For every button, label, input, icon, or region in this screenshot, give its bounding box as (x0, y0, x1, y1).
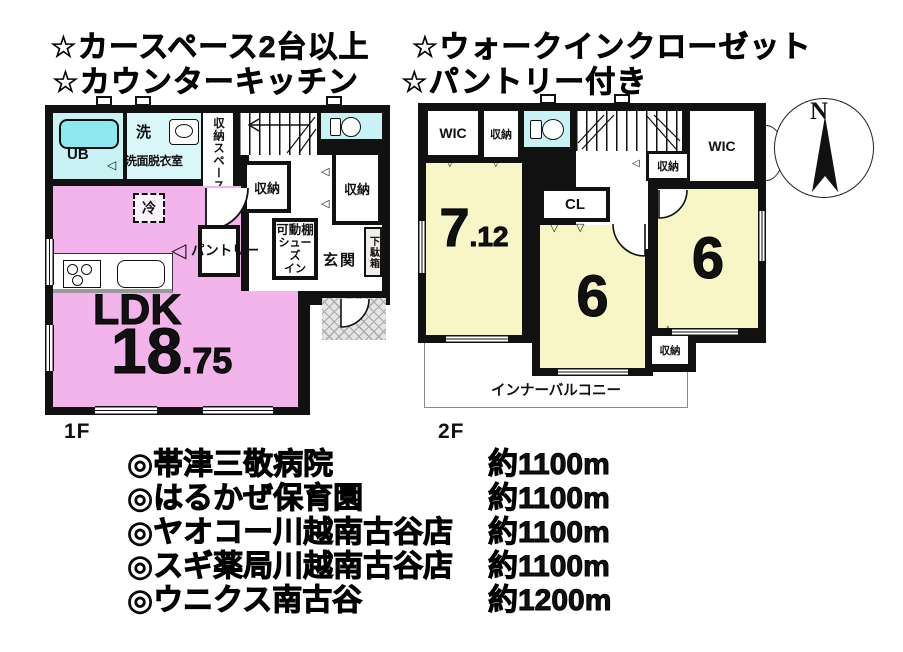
label-room7-area: 7 .12 (426, 201, 522, 255)
header-line-2: ☆カウンターキッチン ☆パントリー付き (52, 57, 647, 101)
label-fridge: 冷 (142, 198, 156, 218)
vent-tab (135, 96, 151, 106)
facility-marker-icon: ◎ (127, 450, 153, 480)
facility-name: はるかぜ保育園 (153, 484, 363, 514)
door-arc-icon (658, 189, 688, 219)
storage-closet: 収納 (332, 151, 382, 225)
room6mid-area: 6 (576, 263, 608, 330)
closet-cl: CL (540, 187, 610, 222)
burner-icon (72, 275, 83, 286)
room-label-storage-b: 収納 (344, 179, 370, 198)
storage-closet: 収納 (243, 161, 291, 213)
burner-icon (81, 264, 92, 275)
facility-row: ◎スギ薬局川越南古谷店 約1100m (127, 552, 610, 582)
window (558, 368, 628, 376)
toilet-icon (542, 119, 564, 140)
floorplan-1f: UB ◁ 洗 洗面脱衣室 収納スペース (45, 105, 390, 415)
vent-tab (326, 96, 342, 106)
room-label-storage-top: 収納 (490, 126, 512, 142)
facility-distance: 約1100m (488, 484, 610, 514)
window (203, 406, 273, 415)
ldk-area-int: 18 (111, 319, 182, 383)
room-label-storage-mid: 収納 (657, 158, 679, 174)
pantry-arrow-icon: ◁ (171, 241, 186, 261)
door-mark-icon: △ (664, 325, 672, 335)
label-shoes-in-1: シューズ (276, 237, 314, 262)
storage-closet: 収納 (646, 151, 690, 181)
vent-tab (96, 96, 112, 106)
floorplan-2f: インナーバルコニー WIC 収納 WIC (418, 103, 766, 415)
burner-icon (67, 264, 78, 275)
facility-distance: 約1100m (488, 552, 610, 582)
facility-marker-icon: ◎ (127, 518, 153, 548)
toilet-icon (341, 117, 361, 137)
room-unit-bath: UB ◁ (53, 113, 123, 179)
window (45, 325, 54, 371)
stairs-1f (239, 113, 317, 155)
room-label-washroom: 洗面脱衣室 (125, 155, 183, 168)
stairs-2f (576, 111, 682, 151)
shoes-in-closet: 可動棚 シューズ イン (272, 218, 318, 280)
compass: N (772, 96, 878, 202)
door-mark-icon: ◁ (107, 159, 116, 171)
facility-name: スギ薬局川越南古谷店 (153, 552, 453, 582)
window (758, 211, 766, 261)
door-mark-icon: ◁ (632, 159, 640, 169)
kitchen-sink-icon (117, 260, 165, 288)
room-laundry: 洗 洗面脱衣室 (127, 113, 201, 179)
facility-distance: 約1200m (488, 586, 611, 616)
window (446, 335, 508, 343)
label-inner-balcony: インナーバルコニー (491, 379, 621, 400)
door-mark-icon: ◁ (321, 199, 329, 210)
ldk-area-dec: .75 (182, 343, 232, 379)
facility-marker-icon: ◎ (127, 484, 153, 514)
door-mark-icon: ◁ (321, 167, 329, 178)
room-label-cl: CL (565, 196, 585, 213)
room-label-wash-short: 洗 (136, 125, 151, 141)
label-shoes-in-2: イン (284, 263, 306, 276)
room-label-storage-bottom: 収納 (660, 343, 681, 358)
facility-name: ヤオコー川越南古谷店 (153, 518, 453, 548)
door-arc-icon (340, 298, 370, 328)
room-label-storage-a: 収納 (254, 178, 280, 197)
room6right-area: 6 (692, 225, 724, 292)
room-storage-bottom: 収納 (652, 336, 688, 364)
facility-distance: 約1100m (488, 518, 610, 548)
label-shoe-cabinet: 下駄箱 (366, 236, 381, 269)
washbasin-icon (169, 119, 199, 145)
facility-row: ◎ウニクス南古谷 約1200m (127, 586, 611, 616)
door-mark-icon: ▽ (576, 223, 584, 234)
facility-name: ウニクス南古谷 (153, 586, 362, 616)
window (672, 328, 738, 336)
room-toilet-1f (321, 113, 382, 139)
facility-distance: 約1100m (488, 450, 610, 480)
facility-marker-icon: ◎ (127, 552, 153, 582)
room-storage-space: 収納スペース (203, 113, 233, 195)
window (418, 221, 426, 273)
entrance-porch (322, 298, 386, 340)
room-label-wic-left: WIC (439, 125, 466, 141)
room-wic-left: WIC (428, 111, 478, 155)
door-arc-icon (612, 223, 646, 257)
facility-row: ◎帯津三敬病院 約1100m (127, 450, 610, 480)
toilet-tank-icon (530, 120, 542, 139)
label-ldk-area: 18 .75 (111, 319, 232, 383)
room-label-storage-space: 収納スペース (210, 117, 226, 192)
room-bedroom-7: 7 .12 (426, 163, 522, 335)
washbasin-bowl-icon (175, 124, 193, 138)
bathtub-icon (59, 119, 119, 149)
label-movable-shelf: 可動棚 (276, 223, 314, 237)
room-wic-right: WIC (690, 111, 754, 181)
room-label-ub: UB (67, 147, 89, 163)
stairs-lines-icon (576, 111, 682, 151)
shoe-cabinet: 下駄箱 (364, 227, 382, 277)
room7-area-int: 7 (440, 201, 470, 255)
room7-area-dec: .12 (470, 223, 509, 251)
room-label-entrance: 玄関 (323, 253, 357, 269)
facility-row: ◎はるかぜ保育園 約1100m (127, 484, 610, 514)
floor-label-1f: 1F (64, 420, 91, 444)
door-mark-icon: ▽ (492, 159, 500, 169)
feature-counter-kitchen: ☆カウンターキッチン (52, 57, 359, 101)
door-mark-icon: ▽ (446, 159, 454, 169)
stairs-arrow-icon (239, 113, 317, 155)
room-storage-top: 収納 (484, 111, 518, 157)
room-toilet-2f (524, 111, 570, 147)
feature-pantry: ☆パントリー付き (401, 57, 647, 101)
floor-label-2f: 2F (438, 420, 465, 444)
refrigerator-space: 冷 (133, 193, 165, 223)
facility-row: ◎ヤオコー川越南古谷店 約1100m (127, 518, 610, 548)
room-label-wic-right: WIC (708, 138, 735, 154)
floorplan-flyer: ☆カースペース2台以上 ☆ウォークインクローゼット ☆カウンターキッチン ☆パン… (0, 0, 903, 652)
label-pantry: パントリー (191, 244, 259, 258)
window (45, 239, 54, 285)
facility-marker-icon: ◎ (127, 586, 153, 616)
stove-icon (63, 260, 101, 288)
toilet-tank-icon (330, 118, 341, 136)
door-mark-icon: ▽ (550, 223, 558, 234)
facility-name: 帯津三敬病院 (153, 450, 333, 480)
window (95, 406, 157, 415)
